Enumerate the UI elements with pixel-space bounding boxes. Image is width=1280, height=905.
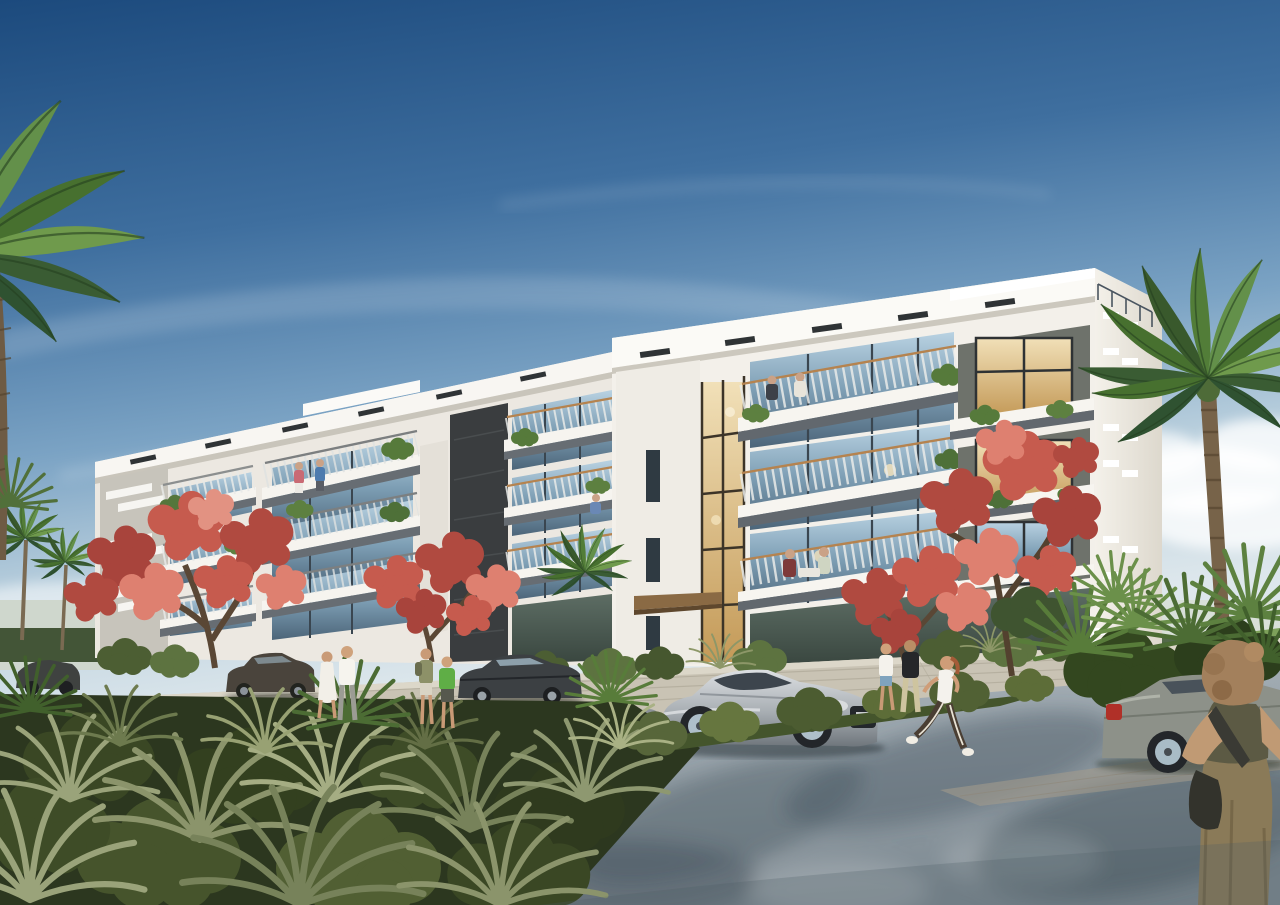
architectural-rendering [0, 0, 1280, 905]
entrance-pier [616, 360, 700, 666]
rendering-figure [0, 0, 1280, 905]
distant-hedge-left [0, 628, 100, 662]
tail-light [1106, 704, 1122, 720]
